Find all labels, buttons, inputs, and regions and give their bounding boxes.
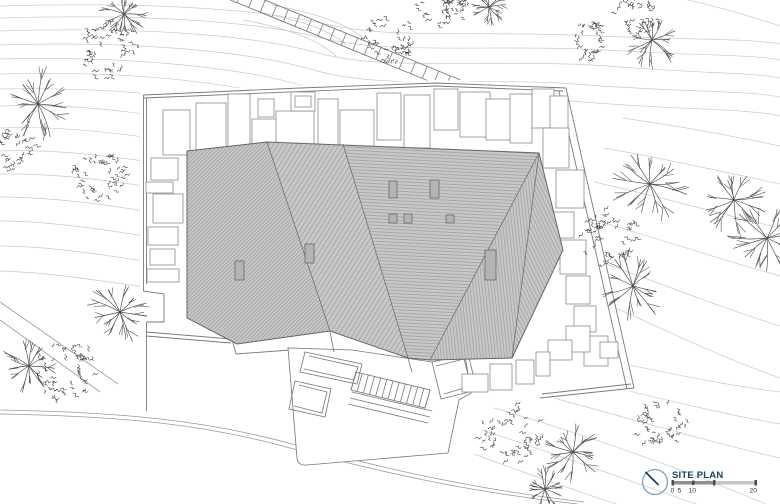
- paving-stone: [460, 92, 490, 137]
- driveway-step: [283, 10, 288, 22]
- roof-skylight: [485, 250, 496, 280]
- paving-stone: [510, 94, 532, 143]
- driveway-step: [260, 0, 265, 12]
- paving-stone: [543, 128, 569, 168]
- paving-stone: [490, 364, 512, 390]
- paving-stone: [600, 342, 618, 358]
- leafy-tree: [475, 402, 543, 464]
- scale-label: 5: [678, 488, 682, 495]
- contour-line: [0, 221, 144, 236]
- contour-line: [688, 0, 780, 26]
- scale-tick: [672, 480, 675, 486]
- leafy-tree: [37, 343, 98, 402]
- contour-line: [604, 148, 780, 184]
- roof-skylight: [305, 244, 314, 263]
- branch-tree: [4, 339, 57, 392]
- scale-bar-light-segment: [714, 481, 757, 485]
- leafy-tree: [611, 0, 660, 37]
- driveway-step: [330, 29, 335, 41]
- driveway-step: [364, 43, 369, 55]
- driveway-step: [237, 0, 242, 3]
- contour-line: [0, 271, 144, 287]
- paving-stone: [163, 110, 190, 155]
- driveway-edge: [226, 0, 456, 92]
- contour-line: [0, 197, 144, 211]
- scale-tick: [713, 480, 716, 486]
- driveway-edge: [230, 0, 460, 80]
- paving-stone: [434, 89, 458, 130]
- branch-tree: [706, 175, 765, 236]
- contour-line: [594, 182, 780, 228]
- paving-stone: [258, 99, 274, 117]
- road-line: [0, 414, 578, 504]
- paving-stone: [148, 227, 178, 245]
- paving-stone: [153, 194, 183, 223]
- branch-tree: [727, 209, 780, 274]
- roof-skylight: [389, 181, 397, 198]
- scale-label: 0: [671, 488, 675, 495]
- driveway-step: [295, 14, 300, 26]
- leafy-tree: [415, 0, 458, 28]
- leafy-tree: [633, 400, 689, 446]
- leafy-tree: [574, 21, 605, 61]
- branch-tree: [612, 153, 689, 221]
- contour-line: [474, 454, 616, 504]
- compass-north-icon: [643, 470, 668, 495]
- scale-label: 10: [689, 488, 697, 495]
- leafy-tree: [83, 19, 140, 79]
- paving-stone: [462, 374, 488, 392]
- paving-stone: [566, 276, 590, 304]
- road-line: [0, 410, 584, 502]
- paving-stone: [560, 240, 586, 274]
- paving-stone: [516, 360, 534, 384]
- paving-stone: [150, 249, 175, 265]
- scale-label: 20: [750, 488, 758, 495]
- contour-line: [0, 174, 144, 186]
- branch-tree: [628, 20, 676, 69]
- contour-line: [0, 246, 144, 261]
- terrace-wall: [288, 348, 471, 465]
- driveway-step: [422, 66, 427, 78]
- roof-skylight: [404, 214, 412, 223]
- site-plan-drawing: SITE PLAN 0 5 10 20: [0, 0, 780, 504]
- site-plan-title: SITE PLAN: [672, 470, 723, 481]
- contour-line: [0, 30, 780, 78]
- scale-bar: 0 5 10 20: [671, 480, 758, 495]
- driveway-step: [249, 0, 254, 7]
- title-block: SITE PLAN 0 5 10 20: [643, 470, 758, 495]
- scale-tick: [692, 481, 695, 486]
- driveway-step: [376, 47, 381, 59]
- paving-stone: [377, 93, 401, 140]
- paving-stone: [151, 158, 178, 180]
- contour-line: [622, 118, 780, 146]
- paving-stone: [486, 99, 512, 140]
- paving-stone: [404, 95, 430, 148]
- paving-stone: [147, 269, 179, 282]
- driveway-step: [341, 33, 346, 45]
- paving-stone: [295, 96, 311, 107]
- roof-skylight: [389, 214, 397, 223]
- roof-skylight: [446, 215, 454, 223]
- branch-tree: [472, 0, 508, 25]
- scale-tick: [755, 480, 758, 486]
- branch-tree: [545, 424, 598, 483]
- paving-stone: [536, 352, 550, 376]
- contour-line: [0, 5, 780, 44]
- paving-stone: [196, 103, 226, 153]
- paving-stone: [548, 340, 572, 360]
- contour-line: [0, 128, 144, 137]
- building-roof: [187, 142, 563, 360]
- page: SITE PLAN 0 5 10 20: [0, 0, 780, 504]
- paving-stone: [146, 182, 173, 193]
- roof-skylight: [430, 180, 439, 198]
- paving-stone: [556, 170, 584, 208]
- roof-skylight: [235, 261, 244, 280]
